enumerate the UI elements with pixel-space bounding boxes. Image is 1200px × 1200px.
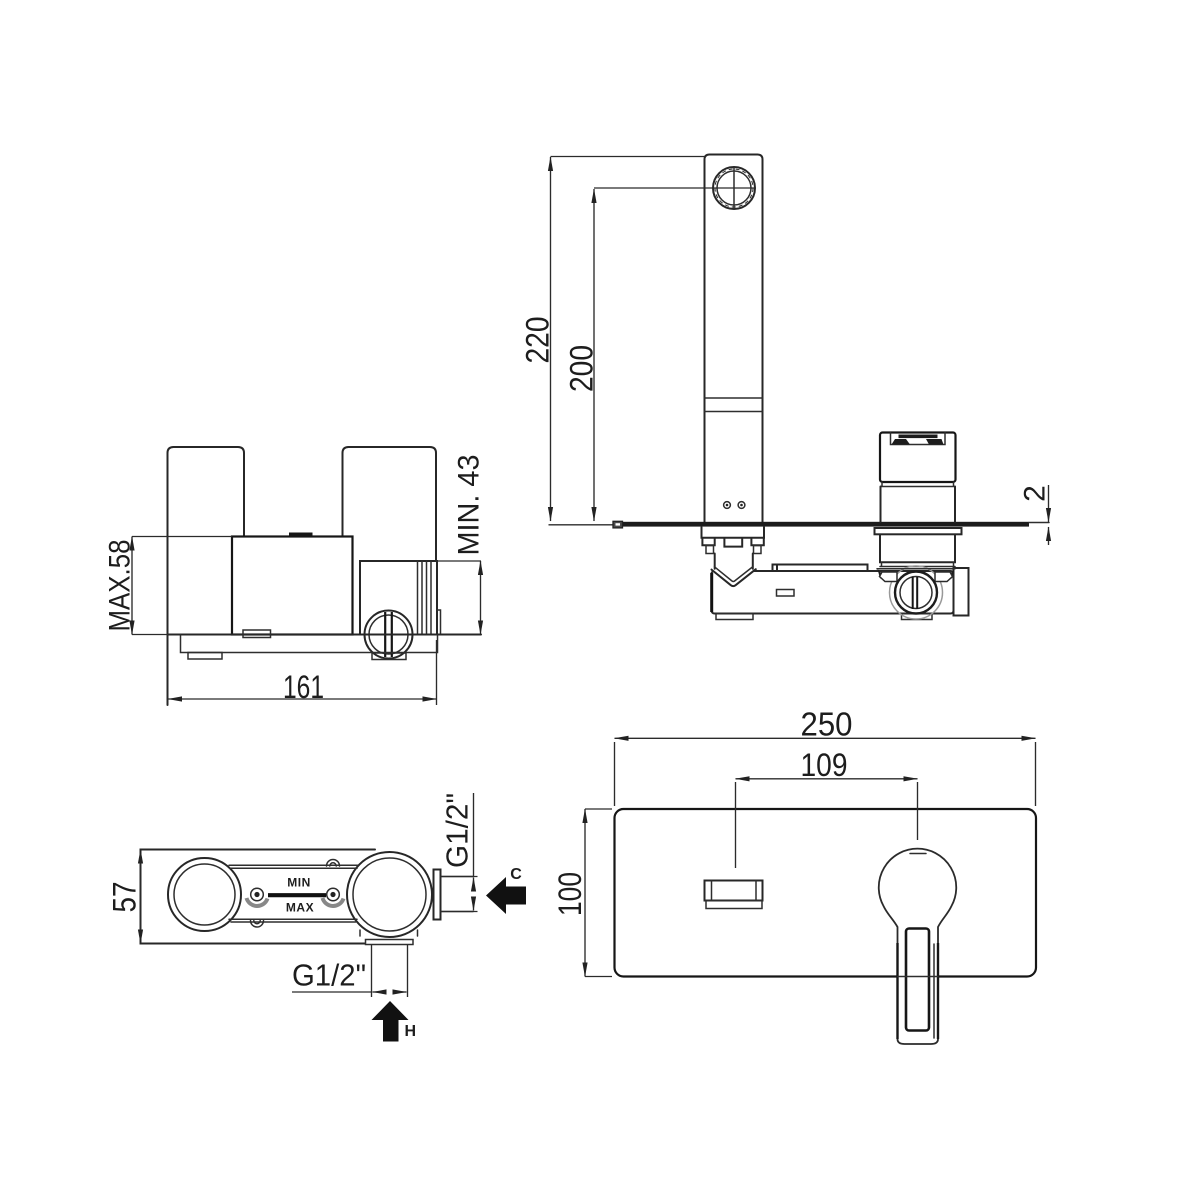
svg-text:161: 161	[283, 669, 324, 705]
svg-text:MIN. 43: MIN. 43	[453, 455, 486, 556]
svg-text:57: 57	[107, 882, 143, 913]
svg-text:109: 109	[801, 747, 848, 783]
svg-text:MAX.58: MAX.58	[104, 540, 137, 632]
svg-text:G1/2": G1/2"	[292, 958, 366, 993]
svg-text:2: 2	[1019, 485, 1052, 502]
svg-text:C: C	[510, 866, 522, 883]
svg-text:MAX: MAX	[286, 901, 314, 915]
svg-text:220: 220	[520, 317, 556, 364]
svg-text:100: 100	[552, 872, 588, 916]
svg-text:H: H	[405, 1023, 417, 1040]
svg-text:200: 200	[564, 345, 600, 392]
svg-text:250: 250	[801, 706, 853, 743]
svg-text:G1/2": G1/2"	[440, 793, 475, 868]
svg-text:MIN: MIN	[287, 876, 311, 890]
